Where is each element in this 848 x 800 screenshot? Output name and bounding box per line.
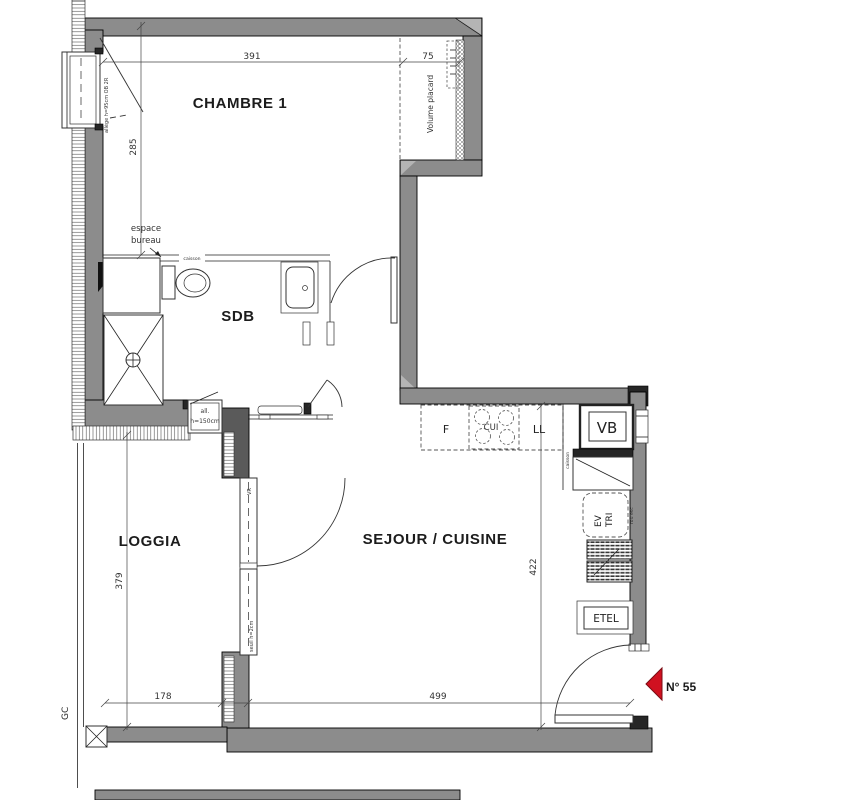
volume-placard-label: Volume placard: [426, 75, 435, 133]
sdb-fixtures: caisson: [98, 254, 334, 419]
ev-label: EV: [594, 514, 604, 527]
seuil-label: seuil h=2cm: [249, 620, 255, 652]
counter-band: [573, 449, 633, 457]
hatch-pier-upper: [224, 432, 234, 476]
washbasin: [281, 262, 318, 313]
column-crossed: [86, 726, 107, 747]
all-window-label-1: all.: [201, 408, 210, 415]
espace-bureau-arrow: [150, 248, 161, 257]
wall-mid-vertical: [400, 176, 417, 390]
doors: [100, 38, 633, 723]
wc: [162, 266, 210, 299]
dimensions: 391 75 285 379 422 178 499: [99, 22, 634, 731]
wall-bottom-sejour: [227, 728, 652, 752]
hatch-left-top: [72, 0, 85, 52]
ev-tri-label: EV TRI: [594, 513, 615, 528]
dim-loggia-width: 178: [154, 692, 171, 702]
duct-note-label: rou esc: [629, 507, 635, 524]
vr-label: VR: [247, 488, 253, 495]
misc: [86, 726, 107, 747]
grille-unit: [587, 540, 632, 582]
floor-plan-drawing: caisson: [0, 0, 848, 800]
wall-top: [85, 18, 482, 36]
door-entry: [555, 645, 633, 723]
hatch-loggia-top: [73, 426, 190, 440]
caisson-kitchen-label: caisson: [565, 452, 571, 469]
espace-bureau-label-1: espace: [131, 224, 161, 234]
entry-threshold: [629, 644, 649, 651]
kitchen: [421, 404, 563, 490]
window-slot-right-wall: [636, 410, 648, 443]
door-sdb-south: [304, 380, 342, 414]
floor-plan-canvas: caisson: [0, 0, 848, 800]
wall-band-bottom-edge: [95, 790, 460, 800]
espace-bureau-label-2: bureau: [131, 236, 161, 246]
hatch-placard-insulation: [456, 40, 464, 160]
hatch-pier-lower: [224, 656, 234, 722]
door-loggia: [257, 478, 345, 566]
flap-unit: [573, 457, 633, 490]
etel-label: ETEL: [593, 613, 619, 625]
dim-loggia-height: 379: [115, 572, 125, 589]
room-label-loggia: LOGGIA: [119, 533, 182, 550]
door-sdb: [331, 257, 397, 323]
dim-sejour-height: 422: [529, 558, 539, 575]
wall-sejour-top: [400, 388, 630, 404]
shower: [104, 315, 163, 405]
entry-arrow-marker: [646, 668, 662, 700]
unit-marker: N° 55: [646, 668, 696, 700]
hatch-left: [72, 127, 85, 430]
room-label-sejour: SEJOUR / CUISINE: [363, 531, 508, 548]
vb-label: VB: [597, 419, 618, 437]
caisson-wc-label: caisson: [183, 256, 200, 262]
dim-chambre-height: 285: [129, 138, 139, 155]
allege-chambre-label: allège h=95cm OB 2R: [103, 77, 110, 133]
wall-right-placard: [463, 36, 482, 160]
room-label-sdb: SDB: [221, 308, 254, 325]
hob-label: CUI: [484, 423, 499, 433]
unit-number: N° 55: [666, 680, 696, 694]
dim-placard-width: 75: [422, 52, 433, 62]
hob-burner: [500, 430, 515, 445]
all-window-label-2: h=150cm: [190, 418, 220, 425]
walls: [85, 18, 652, 800]
dim-sejour-width: 499: [429, 692, 446, 702]
door-jamb-left: [303, 322, 310, 345]
room-label-chambre: CHAMBRE 1: [193, 95, 288, 112]
vanity: [103, 258, 160, 313]
shelf-bench: [248, 406, 333, 419]
washer-label: LL: [533, 423, 546, 436]
tri-label: TRI: [605, 513, 615, 528]
dim-chambre-width: 391: [243, 52, 260, 62]
door-jamb-right: [327, 322, 334, 345]
gc-label: GC: [61, 707, 71, 720]
hob-burner: [499, 411, 514, 426]
fridge-label: F: [443, 423, 449, 436]
